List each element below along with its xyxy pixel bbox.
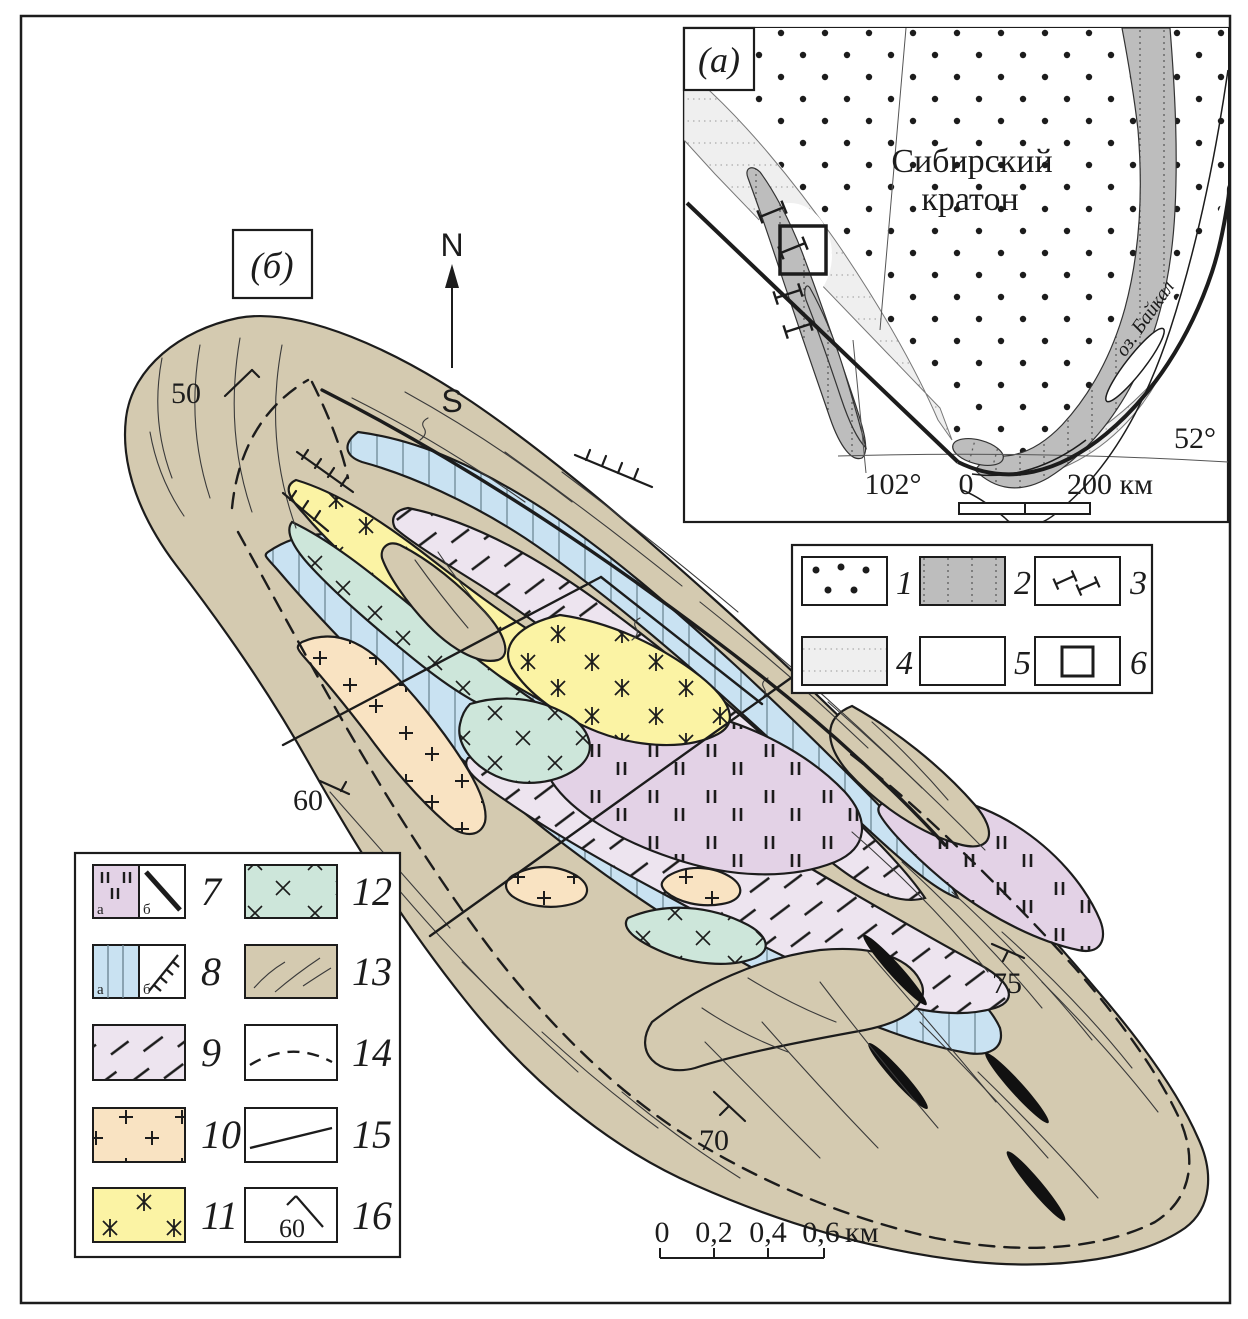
legend12-num: 12 [352,869,392,914]
panel-a-scalebar [959,503,1090,514]
latitude-label: 52° [1174,422,1216,455]
legend-item-7: а б 7 [93,865,223,918]
legend-item-12-swatch [245,865,337,918]
legend1-num: 1 [896,565,913,602]
north-arrow: N S [440,227,463,419]
geologic-figure: 50 60 70 75 (б) N S 0 0,2 0,4 0,6 км [0,0,1248,1319]
panel-a-legend: 1 2 3 4 5 6 [792,545,1152,693]
dip-label-50: 50 [171,377,201,410]
dip-label-75: 75 [992,967,1022,1000]
scale-a-zero: 0 [959,468,974,501]
scaleb-02: 0,2 [695,1216,733,1249]
figure-page: 50 60 70 75 (б) N S 0 0,2 0,4 0,6 км [0,0,1248,1319]
legend8-b-label: б [143,982,151,998]
legend3-num: 3 [1129,565,1147,602]
legend15-num: 15 [352,1112,392,1157]
scaleb-0: 0 [655,1216,670,1249]
legend8-num: 8 [201,949,221,994]
scaleb-06: 0,6 [802,1216,840,1249]
legend-item-5: 5 [920,637,1031,685]
legend-item-4: 4 [802,637,913,685]
legend-item-10-swatch [93,1108,185,1162]
legend-item-8: а б 8 [93,945,221,998]
legend14-num: 14 [352,1030,392,1075]
panel-b-tag: (б) [250,246,293,287]
compass-south-label: S [441,383,462,419]
scale-a-end: 200 км [1067,468,1153,501]
longitude-label: 102° [865,468,922,501]
scaleb-04: 0,4 [749,1216,787,1249]
craton-title-line1: Сибирский [891,143,1052,180]
legend2-num: 2 [1014,565,1031,602]
dip-label-60: 60 [293,784,323,817]
legend7-b-label: б [143,902,151,918]
legend-item-13: 13 [245,945,392,998]
panel-b-scalebar: 0 0,2 0,4 0,6 км [655,1216,879,1258]
north-arrow-head [445,264,459,288]
legend4-num: 4 [896,645,913,682]
legend11-num: 11 [201,1193,238,1238]
legend-item-11-swatch [93,1188,185,1242]
legend16-num: 16 [352,1193,392,1238]
craton-title-line2: кратон [921,181,1018,218]
dip-label-70: 70 [699,1124,729,1157]
legend7-a-label: а [97,902,104,918]
legend-item-16: 60 16 [245,1188,392,1243]
legend10-num: 10 [201,1112,241,1157]
legend-item-6: 6 [1035,637,1147,685]
legend-item-14: 14 [245,1025,392,1080]
legend-item-1: 1 [802,557,913,605]
legend5-num: 5 [1014,645,1031,682]
legend13-num: 13 [352,949,392,994]
panel-a-map: Сибирский кратон оз. Байкал 52° 102° 0 2… [684,28,1238,526]
scaleb-unit: км [845,1216,879,1249]
panel-a-tag: (а) [698,40,740,80]
compass-north-label: N [440,227,463,263]
legend16-dip-value: 60 [279,1214,305,1243]
legend9-num: 9 [201,1030,221,1075]
legend-item-3: 3 [1035,557,1147,605]
legend-item-9-swatch [93,1025,185,1080]
legend-item-15: 15 [245,1108,392,1162]
panel-b-legend: а б 7 а б 8 9 10 11 12 [75,853,400,1257]
legend7-num: 7 [201,869,223,914]
legend-item-2: 2 [920,557,1031,605]
legend6-num: 6 [1130,645,1147,682]
legend8-a-label: а [97,982,104,998]
